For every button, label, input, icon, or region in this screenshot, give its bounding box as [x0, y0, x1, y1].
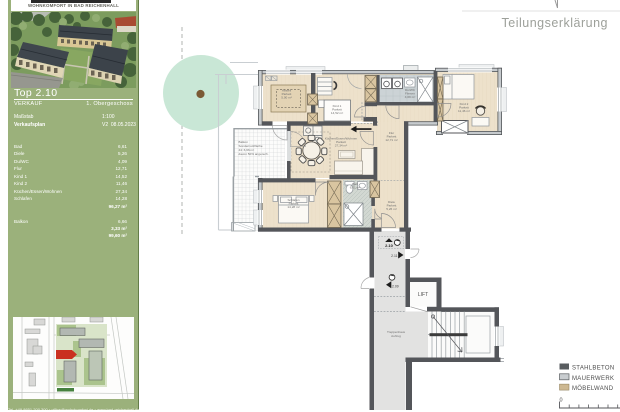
svg-text:11,46 m²: 11,46 m²: [458, 109, 470, 113]
svg-text:0: 0: [560, 398, 563, 404]
svg-text:MÖBELWAND: MÖBELWAND: [572, 385, 614, 392]
svg-text:27,34 m²: 27,34 m²: [335, 144, 347, 148]
svg-text:davon 50% angerech.: davon 50% angerech.: [239, 152, 269, 156]
svg-text:5,26 m²: 5,26 m²: [386, 207, 397, 211]
svg-text:14,52 m²: 14,52 m²: [331, 111, 343, 115]
svg-text:5,00 m²: 5,00 m²: [281, 96, 292, 100]
svg-text:MAUERWERK: MAUERWERK: [572, 376, 614, 382]
svg-text:LIFT: LIFT: [418, 292, 428, 298]
svg-text:STAHLBETON: STAHLBETON: [572, 366, 614, 372]
svg-text:12,71 m²: 12,71 m²: [385, 138, 397, 142]
svg-text:6,61 m²: 6,61 m²: [350, 186, 361, 190]
svg-text:14,28 m²: 14,28 m²: [287, 205, 299, 209]
svg-text:4,09 m²: 4,09 m²: [405, 95, 416, 99]
svg-text:Aufzug: Aufzug: [391, 334, 401, 338]
svg-text:2.10: 2.10: [385, 243, 394, 248]
svg-text:2.11: 2.11: [391, 254, 397, 258]
svg-text:2.09: 2.09: [392, 284, 399, 288]
svg-text:Teilungserklärung: Teilungserklärung: [502, 16, 608, 30]
